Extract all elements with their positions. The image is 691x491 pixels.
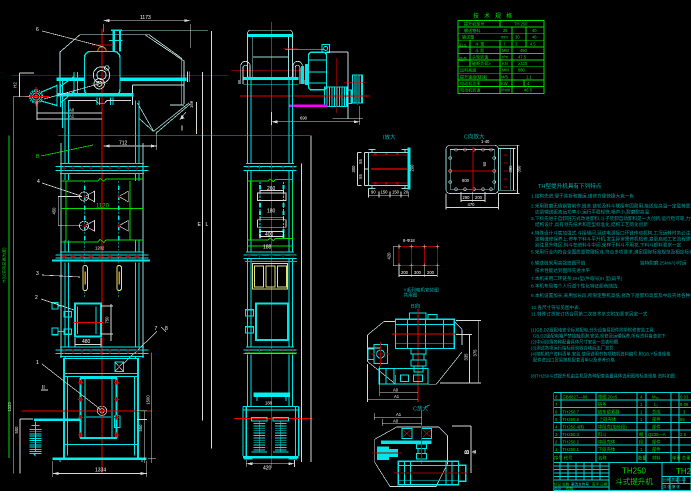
svg-text:上段壳体: 上段壳体 xyxy=(599,416,617,423)
svg-text:第 张: 第 张 xyxy=(672,484,680,489)
svg-text:300: 300 xyxy=(414,270,422,275)
svg-text:(3)测试各项运行指标经验收合格后出厂发货.: (3)测试各项运行指标经验收合格后出厂发货. xyxy=(531,345,615,352)
svg-text:880: 880 xyxy=(518,68,526,73)
svg-text:4.5: 4.5 xyxy=(530,41,536,46)
svg-text:600: 600 xyxy=(462,178,470,183)
svg-text:395: 395 xyxy=(508,165,513,173)
svg-text:750: 750 xyxy=(105,316,110,324)
svg-text:A0: A0 xyxy=(393,418,399,423)
svg-text:共 张: 共 张 xyxy=(663,484,671,489)
svg-text:mm: mm xyxy=(501,35,508,40)
svg-text:A0: A0 xyxy=(393,388,399,393)
svg-text:设计: 设计 xyxy=(554,486,562,491)
svg-text:6: 6 xyxy=(36,27,39,33)
svg-text:≥320: ≥320 xyxy=(518,61,528,66)
svg-text:技术规格: 技术规格 xyxy=(473,12,517,20)
svg-text:定期维修保养上,停车下料斗平升机,发生异常需停机检修,变更启: 定期维修保养上,停车下料斗平升机,发生异常需停机检修,变更启动工艺流程需特 xyxy=(535,236,691,243)
svg-text:TH250: TH250 xyxy=(622,467,647,476)
svg-text:L₂: L₂ xyxy=(654,402,658,407)
svg-text:斗式提升机: 斗式提升机 xyxy=(615,476,653,486)
svg-text:电动机功率: 电动机功率 xyxy=(460,80,480,86)
svg-text:链条: 链条 xyxy=(459,55,467,61)
svg-text:r/min: r/min xyxy=(501,88,511,93)
svg-text:6.输送链采用高强度圆环链: 6.输送链采用高强度圆环链 xyxy=(531,260,586,267)
svg-text:签字 日期: 签字 日期 xyxy=(592,482,608,487)
svg-text:校核: 校核 xyxy=(566,486,574,491)
svg-text:450: 450 xyxy=(52,207,57,215)
svg-text:TH 250: TH 250 xyxy=(514,22,528,27)
svg-text:B向: B向 xyxy=(411,302,420,310)
svg-text:2.6: 2.6 xyxy=(680,432,687,437)
svg-text:结构设计,具有领先技术和定型标准化,结构工艺简化创新: 结构设计,具有领先技术和定型标准化,结构工艺简化创新 xyxy=(535,221,648,228)
svg-text:400: 400 xyxy=(265,232,274,238)
svg-text:M₂₀: M₂₀ xyxy=(652,394,659,399)
svg-text:1.1: 1.1 xyxy=(526,74,532,79)
svg-text:l: l xyxy=(504,41,505,46)
svg-text:200: 200 xyxy=(410,164,415,172)
svg-text:TH250.6: TH250.6 xyxy=(563,417,580,422)
svg-text:10.各尺寸符号见图中表.: 10.各尺寸符号见图中表. xyxy=(531,304,580,311)
svg-text:550: 550 xyxy=(138,424,143,432)
svg-text:7: 7 xyxy=(155,326,158,332)
svg-text:2.采用耐磨无缝钢管制作,链条,链轮及料斗联接牢固耐用,能适: 2.采用耐磨无缝钢管制作,链条,链轮及料斗联接牢固耐用,能适应高温一定载荷要求,… xyxy=(531,203,691,210)
svg-text:46: 46 xyxy=(532,35,537,40)
svg-text:290: 290 xyxy=(463,195,471,200)
svg-text:A1: A1 xyxy=(69,114,75,119)
svg-text:H2: H2 xyxy=(13,82,18,88)
svg-text:提升速度(链速): 提升速度(链速) xyxy=(460,73,488,79)
svg-text:690: 690 xyxy=(300,116,308,121)
svg-text:TH2: TH2 xyxy=(676,467,691,476)
svg-text:150: 150 xyxy=(392,190,400,195)
svg-text:单重 总重: 单重 总重 xyxy=(672,455,691,462)
svg-text:下段壳体: 下段壳体 xyxy=(598,446,616,453)
svg-text:480: 480 xyxy=(82,339,91,345)
svg-text:500: 500 xyxy=(14,426,19,434)
svg-text:MM: MM xyxy=(502,68,509,73)
svg-text:Q235—A: Q235—A xyxy=(648,432,666,437)
svg-text:200: 200 xyxy=(427,270,435,275)
svg-text:335: 335 xyxy=(464,353,469,361)
svg-text:提升机型号: 提升机型号 xyxy=(464,21,484,27)
svg-text:40: 40 xyxy=(532,28,537,33)
svg-text:段: 段 xyxy=(639,438,644,445)
svg-text:9.本机设置加长,采用加长段,所限定整机高低,修改下屋卸料高: 9.本机设置加长,采用加长段,所限定整机高低,修改下屋卸料高度及中段壳体各种规格… xyxy=(531,292,691,299)
svg-text:200: 200 xyxy=(401,270,409,275)
svg-text:200: 200 xyxy=(475,195,483,200)
svg-text:出料高度: 出料高度 xyxy=(460,67,476,73)
svg-text:1335: 1335 xyxy=(7,402,12,412)
svg-text:1.结构先进,便于装拆和搬运,维修方便快捷大克一色: 1.结构先进,便于装拆和搬运,维修方便快捷大克一色 xyxy=(531,193,634,200)
svg-text:中段壳(加长段): 中段壳(加长段) xyxy=(598,423,627,430)
svg-text:5.采用行业内符合全面质量管理标准,符合多项要求,满足国际标: 5.采用行业内符合全面质量管理标准,符合多项要求,满足国际标准规范及相应标准,符… xyxy=(531,249,691,256)
svg-text:名称: 名称 xyxy=(598,455,607,462)
svg-text:更改文件号: 更改文件号 xyxy=(571,482,589,487)
svg-text:质量: 质量 xyxy=(672,477,679,482)
svg-text:输送量: 输送量 xyxy=(462,34,474,40)
svg-text:垫圈 20≥5: 垫圈 20≥5 xyxy=(598,393,618,400)
svg-text:电动机转速: 电动机转速 xyxy=(460,87,480,93)
svg-text:470: 470 xyxy=(468,202,476,207)
svg-text:(1)GB,DZ级配电安全标准配电,分头设备易损件附带检修安: (1)GB,DZ级配电安全标准配电,分头设备易损件附带检修安装工具, xyxy=(531,327,655,334)
svg-text:达到输送距离远功率小,运行平稳轻快,噪声小,耐磨耐高温: 达到输送距离远功率小,运行平稳轻快,噪声小,耐磨耐高温 xyxy=(535,209,649,216)
svg-text:料斗: 料斗 xyxy=(598,431,607,438)
svg-text:斗 宽: 斗 宽 xyxy=(475,40,484,46)
svg-text:TH250.3: TH250.3 xyxy=(563,432,580,437)
svg-text:B: B xyxy=(36,154,40,160)
svg-text:TH250.4(Ⅱ): TH250.4(Ⅱ) xyxy=(563,424,585,429)
svg-text:输送物料: 输送物料 xyxy=(464,27,480,33)
svg-text:配件进出口贸易随机配套清单以及参考价格: 配件进出口贸易随机配套清单以及参考价格 xyxy=(533,357,615,364)
svg-text:斗 距: 斗 距 xyxy=(475,48,484,53)
svg-text:2: 2 xyxy=(35,295,38,301)
svg-text:420: 420 xyxy=(387,252,392,260)
svg-text:M/S: M/S xyxy=(501,74,509,79)
svg-text:技术性能达到国际先进水平: 技术性能达到国际先进水平 xyxy=(535,267,591,274)
svg-text:180: 180 xyxy=(267,209,276,215)
svg-text:9.08: 9.08 xyxy=(680,402,689,407)
svg-text:375: 375 xyxy=(473,349,478,357)
svg-text:65: 65 xyxy=(680,417,685,422)
svg-text:部件: 部件 xyxy=(652,423,661,430)
svg-text:4: 4 xyxy=(37,179,40,185)
svg-text:30: 30 xyxy=(515,35,520,40)
svg-text:47.5: 47.5 xyxy=(518,55,527,60)
svg-text:(8)TH250斗式提升机由主机及各种配套装置具体选用图附标: (8)TH250斗式提升机由主机及各种配套装置具体选用图附标准规格 资料如图. xyxy=(531,373,676,380)
svg-text:60: 60 xyxy=(482,161,487,166)
svg-text:1334: 1334 xyxy=(95,467,106,473)
svg-text:7.本机采用二环链条,DH型(牛眼号)H 型(扁平): 7.本机采用二环链条,DH型(牛眼号)H 型(扁平) xyxy=(531,275,623,282)
svg-text:1:10: 1:10 xyxy=(679,478,686,482)
svg-text:部件: 部件 xyxy=(652,416,661,423)
svg-text:1-40: 1-40 xyxy=(481,139,490,144)
svg-text:4.特殊设计斗底加强式,斗接缝间,延续电源接口环链传动机构,: 4.特殊设计斗底加强式,斗接缝间,延续电源接口环链传动机构,工况运转时务必注意 xyxy=(531,230,691,237)
svg-text:破断负荷≥: 破断负荷≥ xyxy=(472,60,491,66)
svg-text:420: 420 xyxy=(263,466,272,472)
svg-text:料斗: 料斗 xyxy=(459,42,467,48)
svg-text:8-Φ18: 8-Φ18 xyxy=(403,238,415,243)
svg-text:MM: MM xyxy=(502,48,509,53)
svg-text:188: 188 xyxy=(263,245,272,251)
svg-text:r/m: r/m xyxy=(502,55,509,60)
svg-text:1202: 1202 xyxy=(95,246,105,251)
svg-text:中段壳体: 中段壳体 xyxy=(598,438,616,445)
svg-text:头轮转速: 头轮转速 xyxy=(472,54,488,60)
svg-text:B: B xyxy=(465,449,471,454)
svg-text:KW: KW xyxy=(501,81,508,86)
svg-text:TH250.1: TH250.1 xyxy=(563,447,580,452)
svg-text:H(以实际总高为准): H(以实际总高为准) xyxy=(1,247,8,283)
svg-text:标记 处数: 标记 处数 xyxy=(554,482,570,487)
svg-text:数量: 数量 xyxy=(638,455,647,462)
svg-text:A0: A0 xyxy=(69,107,75,112)
svg-text:部件: 部件 xyxy=(652,446,661,453)
svg-text:1: 1 xyxy=(36,360,39,366)
svg-text:GB,DZ级配电箱严禁接触雨淋,安装,检修及运输保养,所有资: GB,DZ级配电箱严禁接触雨淋,安装,检修及运输保养,所有资料备查如下: xyxy=(533,333,667,340)
svg-text:共用图: 共用图 xyxy=(404,292,418,299)
svg-text:L: L xyxy=(206,222,209,228)
svg-text:GB8827—88: GB8827—88 xyxy=(563,394,588,399)
svg-text:TH250.7: TH250.7 xyxy=(563,409,580,414)
svg-text:部件: 部件 xyxy=(652,438,661,445)
svg-text:55: 55 xyxy=(358,174,363,179)
svg-text:别注意升降区,料斗在进料斗中间,采样于料斗不用花,下料斗卸料: 别注意升降区,料斗在进料斗中间,采样于料斗不用花,下料斗卸料要求一定 xyxy=(535,242,682,249)
svg-text:比例: 比例 xyxy=(663,477,670,482)
svg-text:序号 代号: 序号 代号 xyxy=(554,455,572,462)
svg-text:1120: 1120 xyxy=(96,204,110,210)
svg-text:3: 3 xyxy=(36,271,39,277)
svg-text:(4)随机附户资料清单,安装,使用说明书各项随机资料编号,附: (4)随机附户资料清单,安装,使用说明书各项随机资料编号,附GB,Y标准规格 xyxy=(531,351,671,358)
svg-text:46.5: 46.5 xyxy=(524,88,533,93)
svg-text:150: 150 xyxy=(381,190,389,195)
svg-text:根: 根 xyxy=(639,431,644,438)
svg-text:1500: 1500 xyxy=(146,395,151,405)
svg-text:C放大: C放大 xyxy=(413,405,428,413)
svg-text:KN: KN xyxy=(502,61,508,66)
svg-text:总成: 总成 xyxy=(652,408,661,415)
svg-text:链条: 链条 xyxy=(598,401,607,408)
svg-text:链条锁紧器: 链条锁紧器 xyxy=(598,408,620,415)
svg-text:90: 90 xyxy=(371,190,376,195)
svg-text:材料: 材料 xyxy=(652,455,661,462)
svg-text:55: 55 xyxy=(358,159,363,164)
svg-text:A1: A1 xyxy=(396,412,402,417)
svg-text:8.本机布局每个人行道个性化特征颜色随选: 8.本机布局每个人行道个性化特征颜色随选 xyxy=(531,283,618,290)
svg-text:I放大: I放大 xyxy=(383,133,396,141)
svg-text:A1: A1 xyxy=(394,394,400,399)
svg-text:(2)中间段落各种配置具体尺寸安装一览表明细.: (2)中间段落各种配置具体尺寸安装一览表明细. xyxy=(531,339,619,346)
svg-text:450: 450 xyxy=(520,48,528,53)
svg-text:独特耐磨:25kW/小时运: 独特耐磨:25kW/小时运 xyxy=(640,260,687,267)
svg-text:25: 25 xyxy=(503,28,508,33)
svg-text:350: 350 xyxy=(517,165,522,173)
svg-text:300: 300 xyxy=(351,165,356,173)
svg-text:1173: 1173 xyxy=(140,15,151,21)
svg-text:0.03: 0.03 xyxy=(680,394,689,399)
svg-text:188: 188 xyxy=(265,401,273,406)
svg-text:TH型提升机具有下列特点: TH型提升机具有下列特点 xyxy=(538,182,602,190)
svg-text:20: 20 xyxy=(404,190,409,195)
svg-text:169: 169 xyxy=(189,100,194,108)
svg-text:260: 260 xyxy=(267,186,276,192)
svg-text:11.特殊订货按订货合同第二次技术条文附加要求另定一式: 11.特殊订货按订货合同第二次技术条文附加要求另定一式 xyxy=(531,311,648,318)
svg-text:TH250.2: TH250.2 xyxy=(563,439,580,444)
svg-text:3.下料先进于自卸链方式改进卸料,斗子装卸自动卸料是一大创新: 3.下料先进于自卸链方式改进卸料,斗子装卸自动卸料是一大创新,运行稳可靠,力学 xyxy=(531,215,691,222)
svg-text:712: 712 xyxy=(119,140,128,146)
